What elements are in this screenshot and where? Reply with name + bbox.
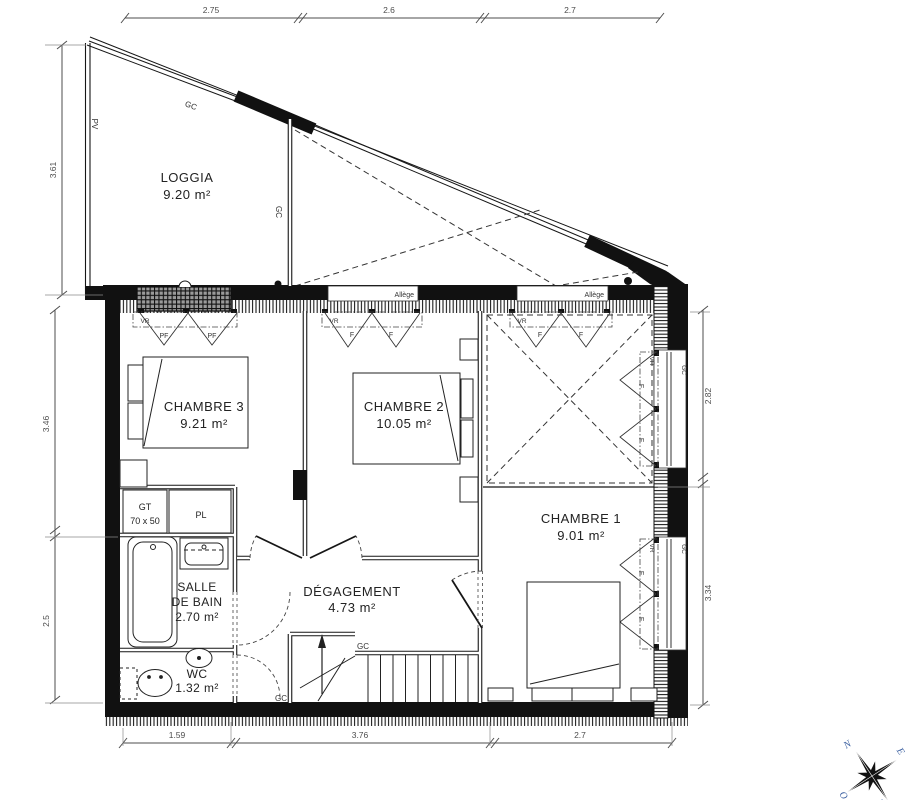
room-label-sdb-2: DE BAIN (172, 595, 223, 609)
label-f-ch2-2: F (389, 332, 393, 339)
label-pv: PV (90, 119, 99, 130)
label-gc-stairs: GC (357, 642, 369, 651)
compass-rose: N E O S (831, 735, 914, 800)
room-label-loggia: LOGGIA (161, 170, 214, 185)
label-gc-floor: GC (275, 694, 287, 703)
label-f-right-1: F (637, 384, 644, 388)
room-label-chambre1: CHAMBRE 1 (541, 511, 621, 526)
room-area-chambre1: 9.01 m² (557, 528, 605, 543)
dim-bottom-2: 3.76 (352, 730, 369, 740)
slant-wall-segment-1 (236, 96, 314, 129)
label-pf-2: PF (208, 333, 217, 340)
label-f-right-2: F (637, 438, 644, 442)
room-area-loggia: 9.20 m² (163, 187, 211, 202)
bed-chambre1 (527, 582, 620, 688)
dim-top-2: 2.6 (383, 5, 395, 15)
label-vr-right-lower: VR (648, 543, 655, 552)
room-area-sdb: 2.70 m² (175, 610, 218, 624)
label-vr-ch2: VR (329, 318, 338, 325)
label-gc-slant: GC (184, 99, 199, 112)
label-allege-ch1: Allège (585, 292, 605, 299)
vent-symbol (179, 281, 191, 287)
loggia-corner-block (85, 286, 106, 300)
compass-o: O (837, 790, 850, 800)
label-gc-window-lower: GC (680, 544, 687, 554)
bottom-hatch-band (105, 717, 688, 726)
label-f-right-4: F (637, 617, 644, 621)
right-wall-outer (668, 284, 688, 718)
dim-top-1: 2.75 (203, 5, 220, 15)
room-area-chambre2: 10.05 m² (376, 416, 431, 431)
stairs (300, 634, 468, 702)
label-pl: PL (195, 510, 206, 520)
room-area-degagement: 4.73 m² (328, 600, 376, 615)
toilet (138, 670, 172, 697)
floor-plan-svg: 2.75 2.6 2.7 3.61 3.46 2.5 2.82 3.34 1.5… (0, 0, 915, 800)
label-f-ch1-2: F (579, 332, 583, 339)
label-f-ch2-1: F (350, 332, 354, 339)
wall-pillar (293, 470, 307, 500)
dim-right-1: 2.82 (703, 387, 713, 404)
door-leaf-chambre1 (452, 580, 482, 628)
label-vr-ch1: VR (517, 318, 526, 325)
dim-bottom-3: 2.7 (574, 730, 586, 740)
dim-left-1: 3.61 (48, 161, 58, 178)
room-area-chambre3: 9.21 m² (180, 416, 228, 431)
label-gc-loggia-wall: GC (274, 206, 283, 218)
right-casement-swings (620, 352, 656, 650)
label-gc-window-upper: GC (680, 365, 687, 375)
room-label-wc: WC (187, 667, 208, 681)
room-label-chambre3: CHAMBRE 3 (164, 399, 244, 414)
left-wall (105, 293, 120, 718)
door-arc-bathroom (237, 592, 290, 645)
label-f-right-3: F (637, 571, 644, 575)
label-gt: GT (139, 502, 152, 512)
label-pf-1: PF (160, 333, 169, 340)
shutter-box-chambre3 (137, 287, 231, 311)
label-f-ch1-1: F (538, 332, 542, 339)
label-vr-right-upper: VR (648, 356, 655, 365)
column-dot-2 (624, 277, 632, 285)
compass-n: N (841, 738, 855, 752)
dim-bottom-1: 1.59 (169, 730, 186, 740)
door-leaf-chambre2 (310, 536, 356, 558)
floor-plan-canvas: 2.75 2.6 2.7 3.61 3.46 2.5 2.82 3.34 1.5… (0, 0, 915, 800)
room-area-wc: 1.32 m² (175, 681, 218, 695)
dim-top-3: 2.7 (564, 5, 576, 15)
room-label-degagement: DÉGAGEMENT (303, 584, 400, 599)
void-dashed-lines-loggia (295, 130, 638, 286)
door-arc-wc (237, 655, 280, 698)
label-gt-size: 70 x 50 (130, 516, 160, 526)
room-label-chambre2: CHAMBRE 2 (364, 399, 444, 414)
room-label-sdb-1: SALLE (177, 580, 216, 594)
casement-swing-lines (140, 313, 610, 347)
dim-right-2: 3.34 (703, 584, 713, 601)
void-over-chambre1 (487, 315, 652, 483)
dim-left-2: 3.46 (41, 415, 51, 432)
label-vr-ch3: VR (140, 318, 149, 325)
label-allege-ch2: Allège (395, 292, 415, 299)
compass-e: E (893, 745, 906, 757)
door-leaf-chambre3 (256, 536, 302, 558)
dim-left-3: 2.5 (41, 615, 51, 627)
bottom-wall (105, 702, 688, 717)
